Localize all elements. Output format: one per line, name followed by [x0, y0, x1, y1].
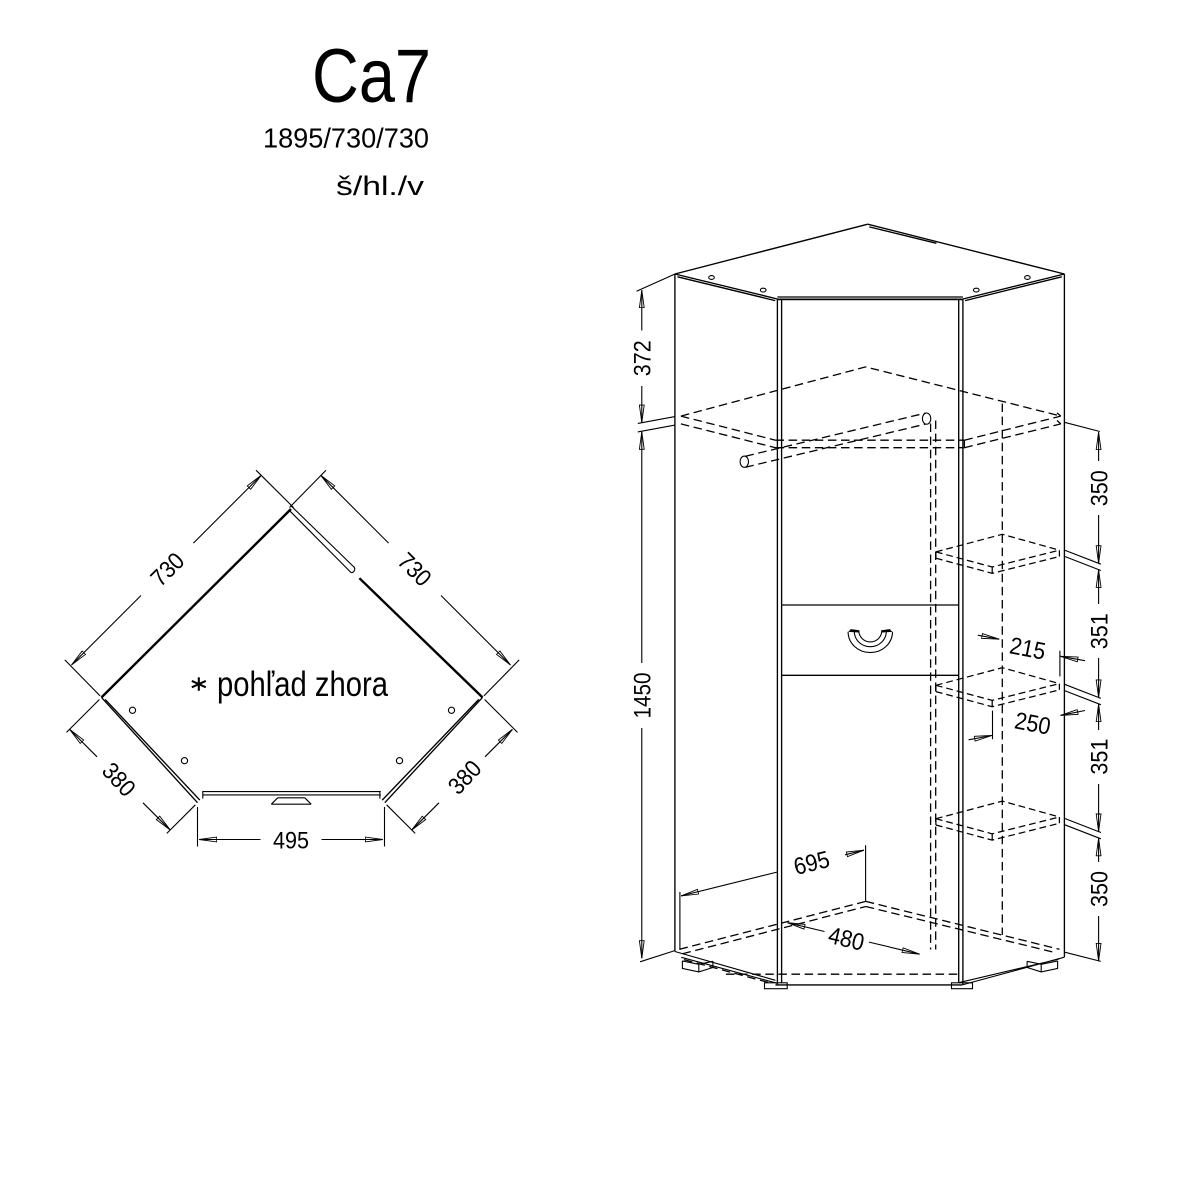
svg-text:Ca7: Ca7	[312, 34, 431, 119]
svg-text:495: 495	[273, 827, 309, 854]
svg-text:1450: 1450	[630, 673, 657, 719]
svg-text:351: 351	[1086, 739, 1113, 775]
svg-text:351: 351	[1086, 613, 1113, 649]
svg-text:1895/730/730: 1895/730/730	[263, 123, 429, 154]
svg-text:350: 350	[1086, 470, 1113, 506]
svg-text:372: 372	[630, 340, 657, 376]
svg-text:pohľad zhora: pohľad zhora	[217, 665, 388, 704]
svg-text:š/hl./v: š/hl./v	[336, 171, 425, 201]
svg-text:350: 350	[1086, 871, 1113, 907]
